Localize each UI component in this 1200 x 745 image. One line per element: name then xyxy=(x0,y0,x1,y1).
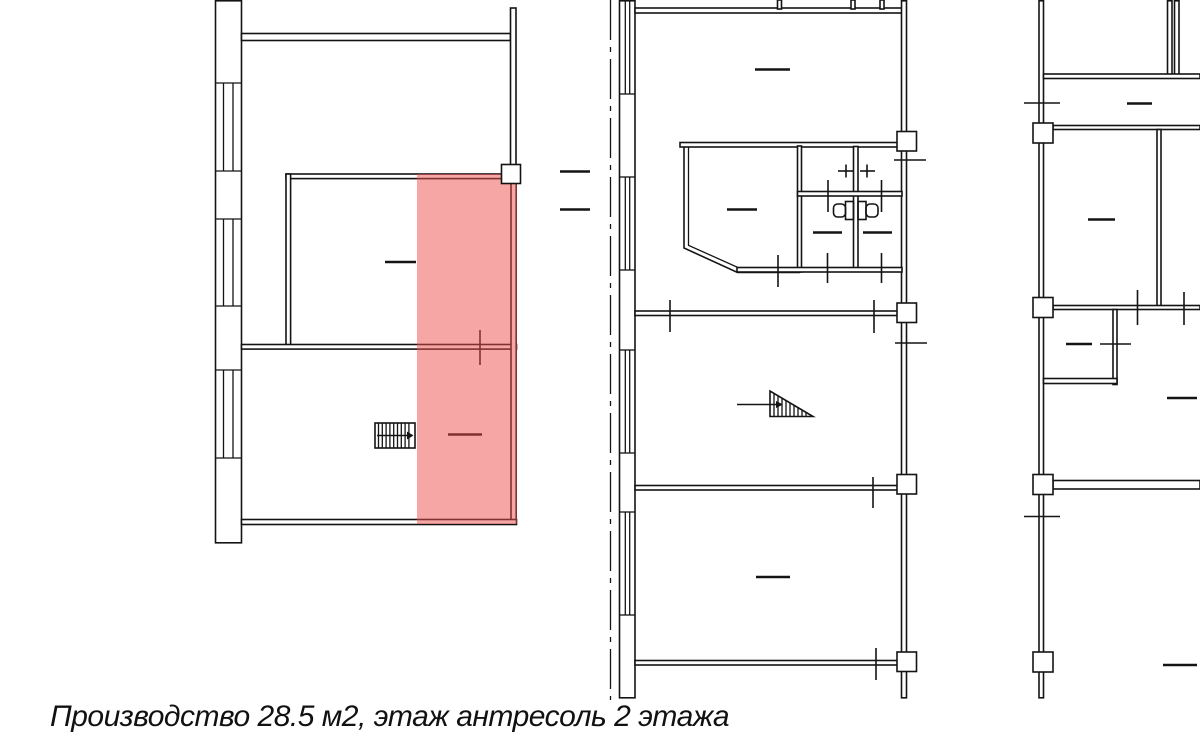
left-exterior-wall xyxy=(1039,1,1044,698)
left-exterior-wall xyxy=(216,1,242,543)
interior-wall xyxy=(635,486,902,491)
column xyxy=(1033,123,1053,143)
partition-wall xyxy=(1157,130,1161,308)
cluster-top-wall xyxy=(680,143,898,148)
interior-wall xyxy=(1053,126,1200,130)
column xyxy=(1033,298,1053,318)
cluster-bottom-wall xyxy=(737,268,902,273)
inner-room-left-wall xyxy=(286,174,291,345)
floorplan-canvas xyxy=(0,0,1200,745)
column xyxy=(897,303,917,323)
interior-wall xyxy=(1044,74,1200,79)
partition-stub xyxy=(880,0,884,9)
partition-wall xyxy=(1044,379,1118,384)
interior-wall xyxy=(635,311,902,316)
interior-wall xyxy=(1053,481,1200,490)
cluster-vwall xyxy=(798,146,802,272)
column xyxy=(1033,652,1053,672)
cluster-hwall xyxy=(798,192,903,197)
column xyxy=(502,165,521,184)
column xyxy=(1033,475,1053,495)
chamfer-wall-inner xyxy=(689,147,801,268)
highlighted-unit[interactable] xyxy=(417,174,517,524)
floorplan-svg xyxy=(0,0,1200,745)
toilet-icon xyxy=(834,202,854,220)
caption: Производство 28.5 м2, этаж антресоль 2 э… xyxy=(50,700,1150,734)
toilet-icon xyxy=(858,202,878,220)
top-wall xyxy=(242,34,511,41)
interior-wall xyxy=(635,661,902,666)
sanitary-cluster xyxy=(680,143,902,288)
top-wall xyxy=(635,8,902,13)
left-exterior-wall xyxy=(620,1,636,698)
right-wall-upper xyxy=(511,8,517,165)
sink-icon xyxy=(860,165,875,178)
sink-icon xyxy=(838,165,853,178)
right-exterior-wall xyxy=(902,1,907,698)
partition-stub xyxy=(851,0,855,9)
partition-wall xyxy=(1175,1,1180,77)
partition-wall xyxy=(1168,1,1173,77)
building-middle xyxy=(560,0,927,700)
partition-wall xyxy=(1113,310,1117,385)
column xyxy=(897,475,917,495)
staircase-icon xyxy=(375,423,415,448)
interior-wall xyxy=(1053,306,1200,310)
building-right xyxy=(1024,1,1200,698)
column xyxy=(897,652,917,672)
ramp-icon xyxy=(737,391,813,417)
partition-stub xyxy=(778,0,782,9)
column xyxy=(897,132,917,152)
